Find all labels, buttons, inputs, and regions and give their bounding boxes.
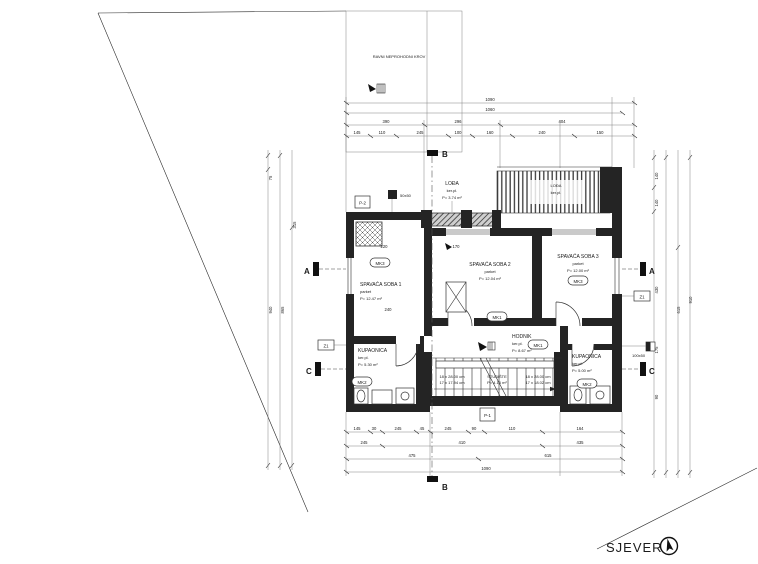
- mark-z1-right: Z1: [622, 291, 650, 301]
- dim-bot-r1-5: 90: [472, 426, 477, 431]
- dim-top-r4-4: 160: [487, 130, 495, 135]
- svg-text:P-2: P-2: [359, 200, 366, 205]
- north-label: SJEVER: [606, 540, 663, 555]
- dim-top-r4-0: 145: [354, 130, 362, 135]
- terrace-hatched-area: LOĐA ker.pl.: [497, 167, 622, 213]
- terrace-name: LOĐA: [551, 183, 562, 188]
- svg-text:MK2: MK2: [357, 380, 367, 385]
- window-mk3-bed3: [552, 228, 596, 236]
- interior-dim-1: 170: [453, 244, 461, 249]
- stairs-name: STUBIŠTE: [487, 374, 507, 379]
- svg-text:50x50: 50x50: [400, 193, 412, 198]
- room-label-loggia: LOĐA ker.pl. P= 3.74 m²: [442, 181, 462, 212]
- svg-text:MK1: MK1: [533, 343, 543, 348]
- dim-top-r4-2: 245: [417, 130, 425, 135]
- bath2-name: KUPAONICA: [572, 354, 602, 360]
- dim-right-2: 910: [688, 296, 693, 304]
- floor-drain-loggia: [445, 243, 452, 250]
- dimension-chain-top: 1090 1060 390 296 404 145 110 245 100 16…: [344, 97, 637, 138]
- dim-left-2: 865: [280, 306, 285, 314]
- dim-top-r4-6: 150: [597, 130, 605, 135]
- mark-mk1-hall-top: MK1: [487, 312, 507, 321]
- mark-z1-left: Z1: [318, 340, 346, 350]
- wardrobe: [446, 282, 466, 312]
- terrace-floor: ker.pl.: [551, 190, 562, 195]
- floor-plan-drawing: RAVNI NEPROHODNI KROV: [0, 0, 758, 564]
- section-marker-c-left: C: [306, 362, 346, 376]
- dim-top-overall: 1090: [485, 97, 495, 102]
- room-label-bath1: KUPAONICA ker.pl. P= 5.30 m²: [358, 348, 388, 367]
- svg-text:Z1: Z1: [639, 294, 645, 299]
- bed1-interior-dim: 240: [385, 307, 393, 312]
- dim-bot-r2-1: 410: [459, 440, 467, 445]
- bathroom-left-fixtures: [354, 388, 414, 404]
- bed1-floor: parket: [360, 289, 372, 294]
- room-label-bed1: SPAVAĆA SOBA 1 parket P= 12.47 m² 240: [360, 281, 402, 312]
- hall-name: HODNIK: [512, 334, 532, 340]
- svg-text:100x50: 100x50: [632, 353, 646, 358]
- staircase: 18 x 28.00 cm 17 x 17.94 cm STUBIŠTE P= …: [430, 358, 562, 396]
- section-marker-b-top: B: [427, 150, 448, 159]
- dim-right-6: 90: [654, 394, 659, 399]
- dim-top-r3-2: 404: [559, 119, 567, 124]
- dim-bot-r2-0: 245: [361, 440, 369, 445]
- dim-top-r4-5: 240: [539, 130, 547, 135]
- dim-left-0: 75: [268, 175, 273, 180]
- bed3-floor: parket: [572, 261, 584, 266]
- svg-text:MK3: MK3: [375, 261, 385, 266]
- vent-shaft: [356, 222, 382, 246]
- room-label-bath2: KUPAONICA ker.pl. P= 5.00 m²: [572, 354, 602, 373]
- svg-text:A: A: [304, 267, 310, 276]
- loggia-parapet: [421, 210, 501, 228]
- room-label-bed3: SPAVAĆA SOBA 3 parket P= 12.00 m²: [557, 253, 599, 273]
- mark-mk3-bed1: MK3: [370, 258, 390, 267]
- svg-text:C: C: [649, 367, 655, 376]
- north-arrow-icon: [661, 538, 678, 555]
- bed1-name: SPAVAĆA SOBA 1: [360, 281, 402, 288]
- bed2-name: SPAVAĆA SOBA 2: [469, 261, 511, 268]
- dim-bot-r1-0: 145: [354, 426, 362, 431]
- dim-bot-r1-4: 245: [445, 426, 453, 431]
- dim-bot-r2-2: 435: [577, 440, 585, 445]
- svg-text:MK1: MK1: [492, 315, 502, 320]
- section-marker-b-bottom: B: [427, 476, 448, 492]
- mark-mk2-bath2: MK2: [577, 379, 597, 388]
- vent-100x50: 100x50: [622, 342, 655, 358]
- dim-bot-r1-1: 30: [372, 426, 377, 431]
- dimension-chain-right: 140 140 910 430 615 175 90: [652, 155, 693, 475]
- svg-text:MK3: MK3: [573, 279, 583, 284]
- dim-bot-r3-1: 615: [545, 453, 553, 458]
- stairs-right-treads: 18 x 28.00 cm: [525, 374, 551, 379]
- bathroom-right-fixtures: [570, 386, 610, 404]
- mark-mk1-hall: MK1: [528, 340, 548, 349]
- dim-top-r3-0: 390: [383, 119, 391, 124]
- roof-drain-icon: [368, 84, 385, 93]
- dim-bot-r1-2: 245: [395, 426, 403, 431]
- section-marker-c-right: C: [622, 362, 655, 376]
- roof-projection: RAVNI NEPROHODNI KROV: [346, 11, 462, 152]
- svg-text:C: C: [306, 367, 312, 376]
- window-z1-right: [612, 258, 622, 294]
- bath1-area: P= 5.30 m²: [358, 362, 378, 367]
- loggia-area: P= 3.74 m²: [442, 195, 462, 200]
- dim-bot-r1-7: 164: [577, 426, 585, 431]
- svg-text:P-1: P-1: [484, 413, 491, 418]
- dim-left-3: 315: [292, 221, 297, 229]
- floor-plan-sheet: RAVNI NEPROHODNI KROV: [0, 0, 758, 564]
- bath1-floor: ker.pl.: [358, 355, 369, 360]
- dim-right-4: 615: [676, 306, 681, 314]
- floor-drain-hall: [478, 342, 495, 351]
- stairs-left-risers: 17 x 17.94 cm: [439, 380, 465, 385]
- dimension-extension-lines: [268, 97, 690, 478]
- dim-top-r4-3: 100: [455, 130, 463, 135]
- dim-bot-r1-3: 45: [420, 426, 425, 431]
- svg-text:B: B: [442, 483, 448, 492]
- bath2-floor: ker.pl.: [572, 361, 583, 366]
- svg-text:B: B: [442, 150, 448, 159]
- roof-note: RAVNI NEPROHODNI KROV: [373, 54, 426, 59]
- dim-right-0: 140: [654, 172, 659, 180]
- stairs-right-risers: 17 x 18.02 cm: [525, 380, 551, 385]
- bed2-area: P= 12.04 m²: [479, 276, 502, 281]
- mark-p1-box: P-1: [480, 408, 495, 421]
- room-label-bed2: SPAVAĆA SOBA 2 parket P= 12.04 m²: [469, 261, 511, 281]
- dimension-chain-left: 75 940 865 315: [266, 153, 297, 468]
- stairs-left-treads: 18 x 28.00 cm: [439, 374, 465, 379]
- loggia-floor: ker.pl.: [447, 188, 458, 193]
- dimension-chain-bottom: 145 30 245 45 245 90 110 164 245 410 435…: [344, 426, 625, 474]
- bath1-name: KUPAONICA: [358, 348, 388, 354]
- svg-text:Z1: Z1: [323, 343, 329, 348]
- bath2-area: P= 5.00 m²: [572, 368, 592, 373]
- mark-p2-box: P-2: [355, 196, 370, 208]
- dim-right-1: 140: [654, 199, 659, 207]
- dim-bot-overall: 1090: [481, 466, 491, 471]
- interior-dim-0: 220: [381, 244, 389, 249]
- bed1-area: P= 12.47 m²: [360, 296, 383, 301]
- bed3-area: P= 12.00 m²: [567, 268, 590, 273]
- window-mk3-bed2: [446, 228, 490, 236]
- dim-bot-r3-0: 475: [409, 453, 417, 458]
- north-indicator: SJEVER: [606, 538, 678, 556]
- bed2-floor: parket: [484, 269, 496, 274]
- window-z1-left: [346, 258, 354, 294]
- dim-bot-r1-6: 110: [509, 426, 516, 431]
- stairs-area: P= 4.16 m²: [487, 380, 507, 385]
- dim-top-r4-1: 110: [379, 130, 386, 135]
- svg-text:MK2: MK2: [582, 382, 592, 387]
- section-marker-a-right: A: [622, 262, 655, 276]
- section-marker-a-left: A: [304, 262, 346, 276]
- dim-left-1: 940: [268, 306, 273, 314]
- vent-50x50: 50x50: [388, 190, 412, 212]
- svg-text:A: A: [649, 267, 655, 276]
- mark-mk2-bath1: MK2: [352, 377, 372, 386]
- dim-top-second: 1060: [485, 107, 495, 112]
- bed3-name: SPAVAĆA SOBA 3: [557, 253, 599, 260]
- loggia-name: LOĐA: [445, 181, 459, 187]
- hall-floor: ker.pl.: [512, 341, 523, 346]
- dim-right-3: 430: [654, 286, 659, 294]
- dim-top-r3-1: 296: [455, 119, 463, 124]
- mark-mk3-bed3: MK3: [568, 276, 588, 285]
- hall-area: P= 8.67 m²: [512, 348, 532, 353]
